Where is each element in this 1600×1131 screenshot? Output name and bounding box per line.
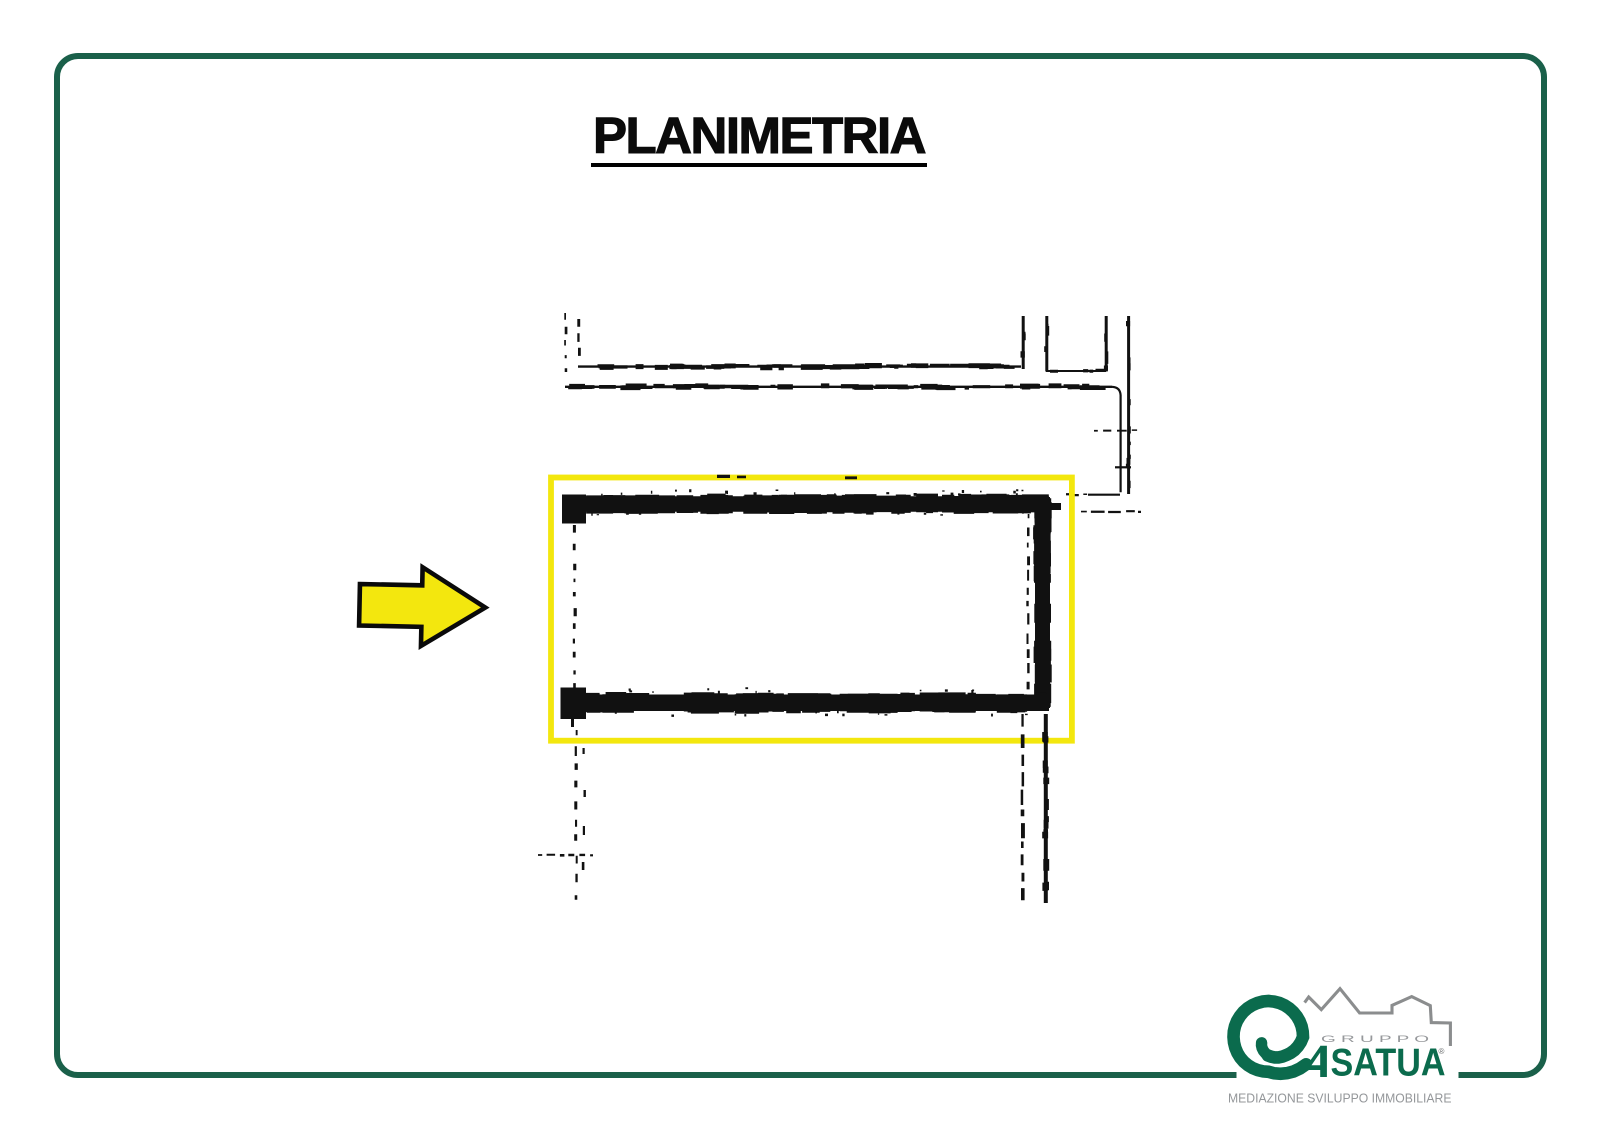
svg-text:®: ® <box>1439 1047 1445 1056</box>
svg-text:SATUA: SATUA <box>1331 1041 1446 1084</box>
svg-text:MEDIAZIONE SVILUPPO IMMOBILIAR: MEDIAZIONE SVILUPPO IMMOBILIARE <box>1228 1091 1452 1106</box>
